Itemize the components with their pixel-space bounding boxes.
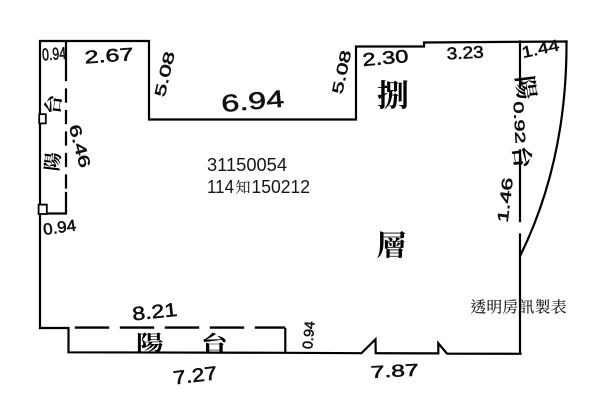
svg-text:2.67: 2.67 [84,44,134,67]
svg-text:0.94: 0.94 [41,44,66,65]
svg-text:0.94: 0.94 [299,320,317,350]
svg-text:6.94: 6.94 [220,86,285,118]
svg-text:7.87: 7.87 [370,361,419,382]
svg-text:31150054: 31150054 [207,155,287,175]
svg-text:114: 114 [207,177,234,197]
svg-text:2.30: 2.30 [362,46,410,70]
svg-text:3.23: 3.23 [446,43,484,64]
svg-text:0.92: 0.92 [511,101,529,144]
svg-text:150212: 150212 [252,177,311,197]
